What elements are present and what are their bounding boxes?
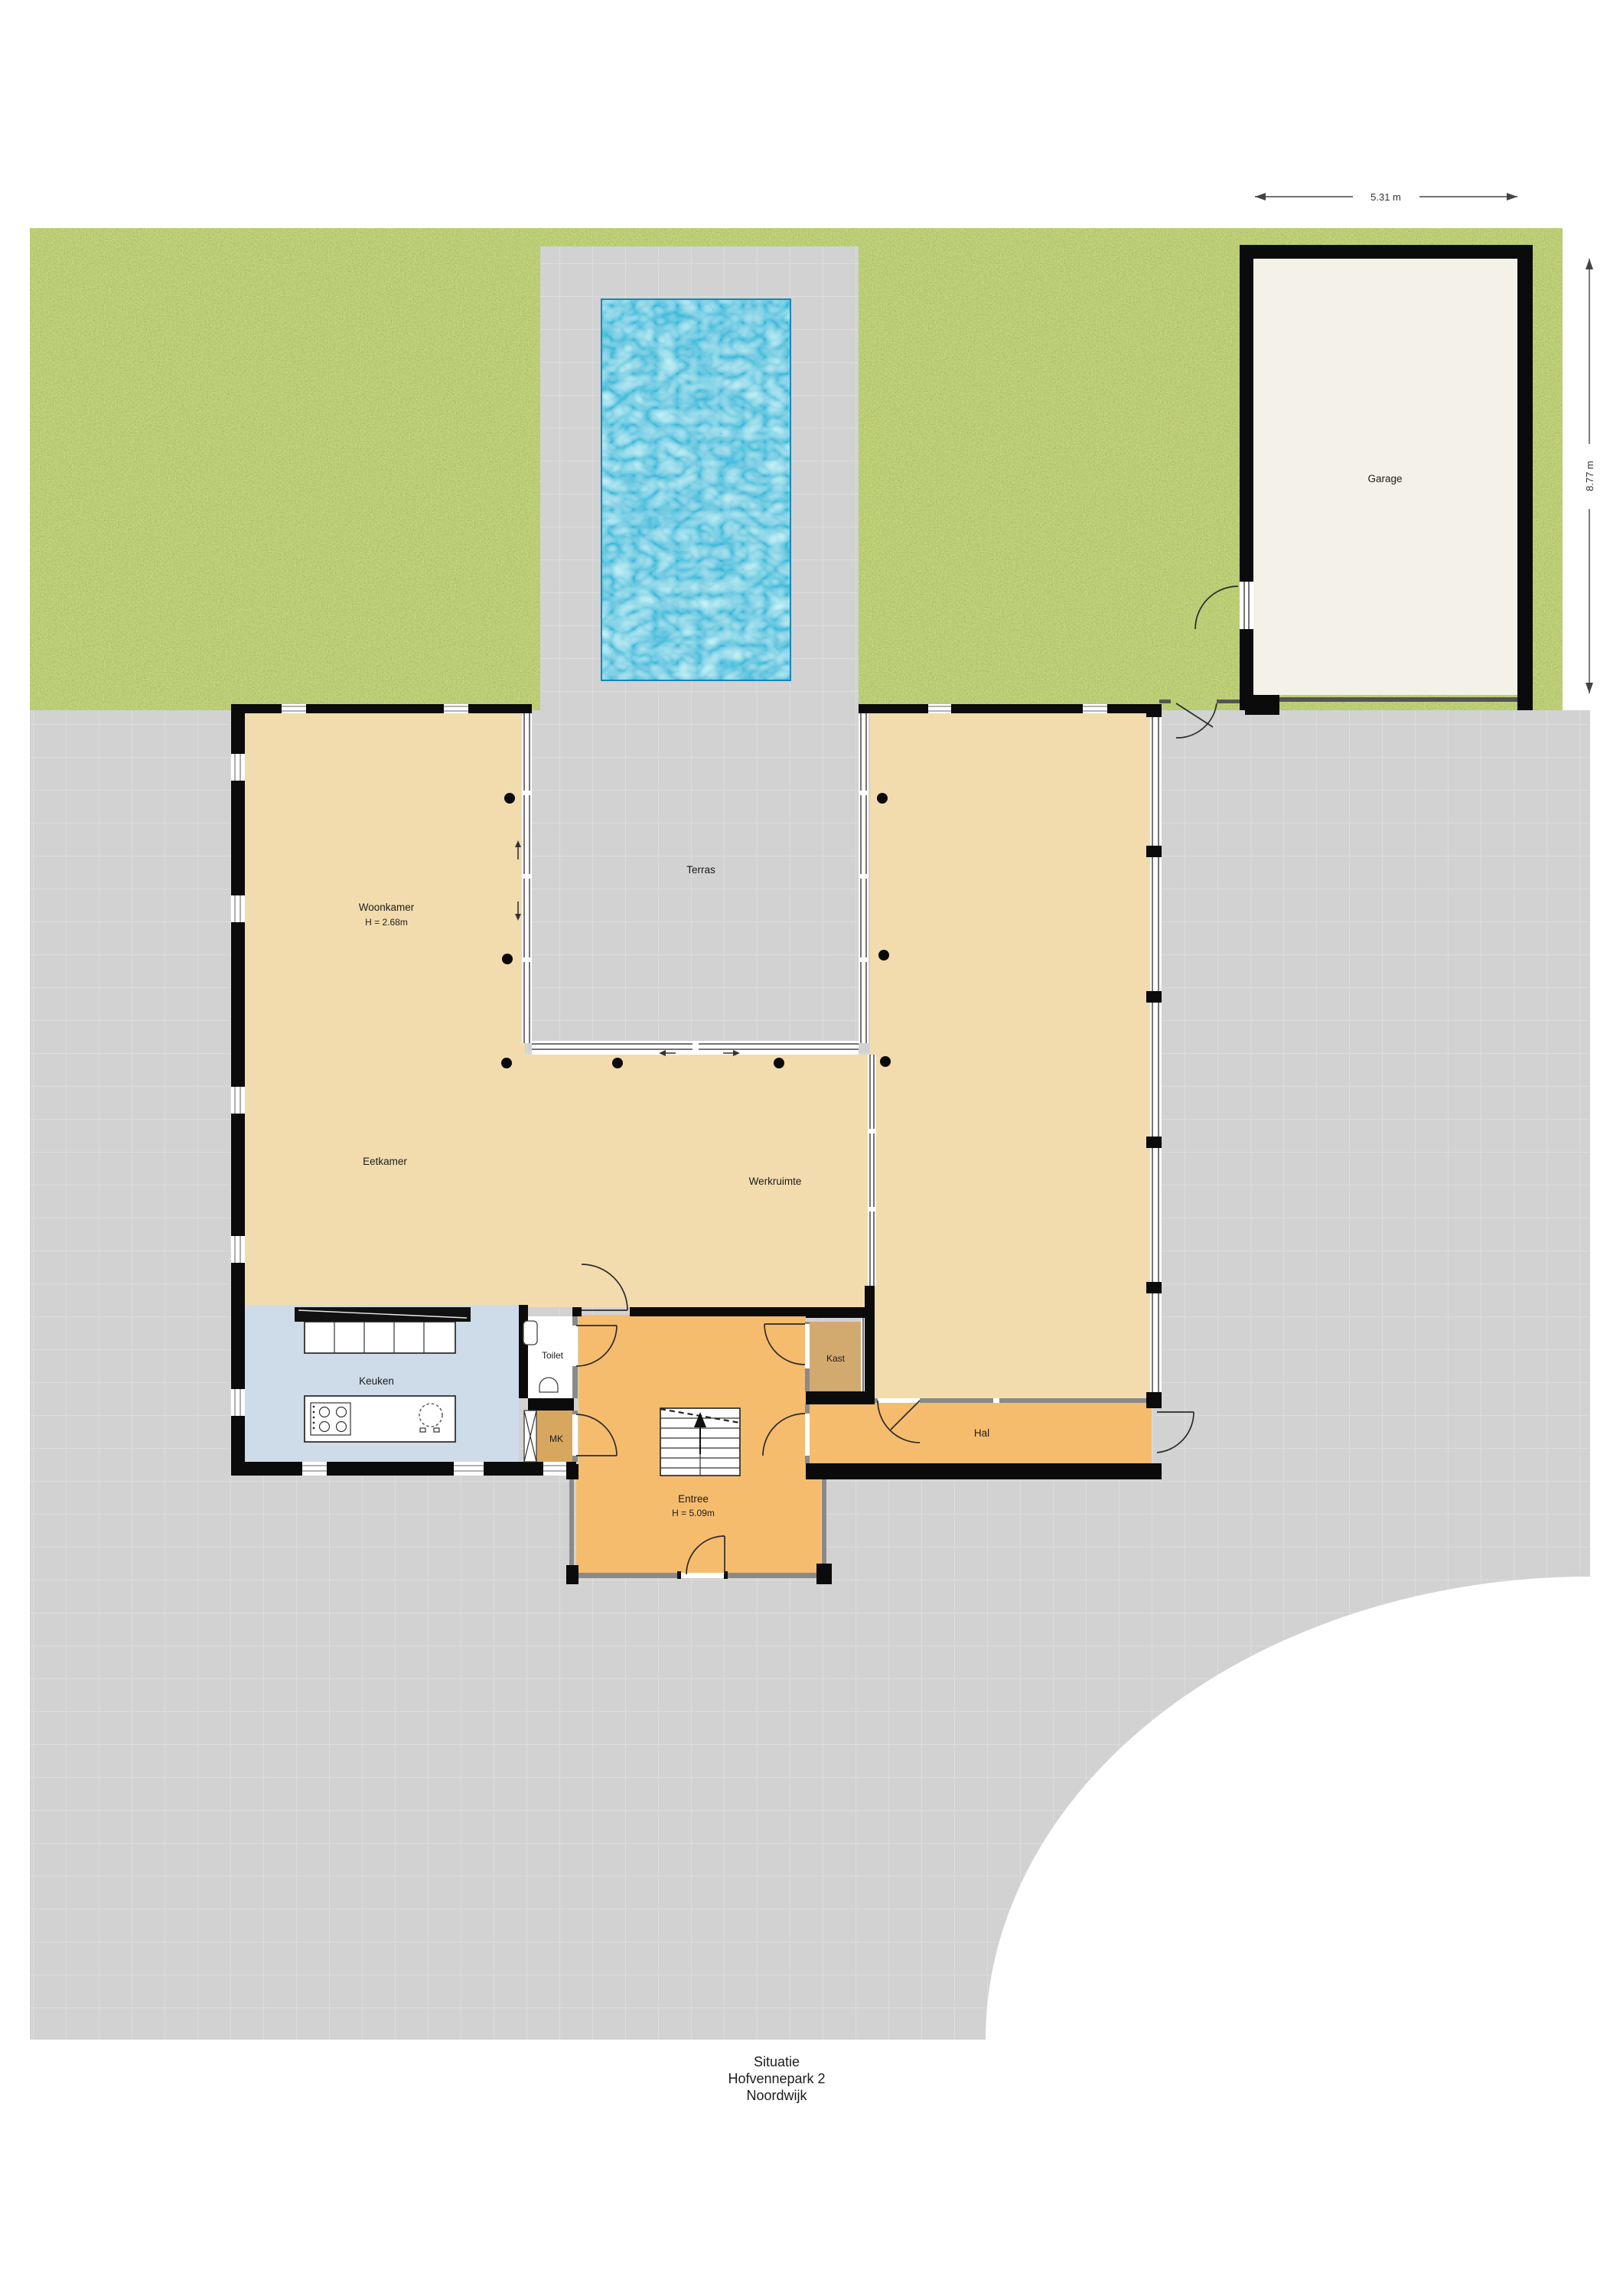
hal-label: Hal [974,1427,989,1439]
woonkamer-label: Woonkamer [359,902,415,913]
woonkamer-height-label: H = 2.68m [365,917,408,928]
wall-toilet-west [519,1305,528,1398]
wall-north-east [859,704,1162,713]
garage-label: Garage [1367,473,1402,484]
garage: Garage [1195,245,1533,715]
garage-wall-east [1517,259,1533,710]
werkruimte-label: Werkruimte [749,1176,802,1187]
window-north-2 [444,704,468,713]
garage-wall-west-lower [1240,629,1253,695]
staircase [660,1408,740,1476]
wall-kast-north [806,1307,865,1318]
wall-toilet-mk [528,1398,574,1411]
wall-entree-north [630,1307,806,1316]
garage-width-label: 5.31 m [1370,191,1401,203]
garage-side-door-gap [1240,582,1253,629]
window-west-5 [231,1389,245,1416]
garage-depth-label: 8.77 m [1584,461,1595,491]
title-block: Situatie Hofvennepark 2 Noordwijk [728,2054,825,2103]
kitchen-cabinets [305,1322,455,1353]
dimension-garage-depth: 8.77 m [1584,259,1595,693]
window-north-3 [928,704,951,713]
eetkamer-label: Eetkamer [363,1156,407,1167]
wall-kast-south [806,1391,865,1404]
floor-werkruimte [525,1055,870,1307]
dimension-garage-width: 5.31 m [1255,191,1517,203]
mk-label: MK [549,1433,563,1444]
terras-label: Terras [686,864,715,876]
window-south-2 [454,1462,484,1476]
toilet-sink [523,1321,537,1345]
window-south-1 [302,1462,327,1476]
window-west-3 [231,1087,245,1114]
garage-wall-south-pier [1245,704,1279,715]
wall-south-hal [806,1463,1162,1479]
wall-north-west [231,704,532,713]
entree-height-label: H = 5.09m [672,1508,715,1518]
garage-wall-west-upper [1240,259,1253,582]
window-north-1 [282,704,306,713]
garage-door-line [1279,697,1517,702]
title-line-1: Situatie [754,2054,800,2069]
toilet-label: Toilet [542,1350,564,1361]
floor-woonkamer-eetkamer [245,713,525,1305]
floor-entree-lower [576,1476,821,1575]
toilet-bowl [539,1378,558,1392]
wall-south-main [231,1462,576,1476]
entree-label: Entree [678,1493,709,1505]
keuken-label: Keuken [359,1375,394,1387]
window-west-4 [231,1236,245,1263]
wall-kast-east [865,1286,875,1404]
title-line-3: Noordwijk [746,2088,807,2103]
mk-hatch [524,1411,536,1462]
swimming-pool [601,299,790,680]
window-south-3 [543,1462,566,1476]
window-west-1 [231,754,245,781]
floor-east-wing [870,713,1152,1398]
title-line-2: Hofvennepark 2 [728,2071,825,2086]
situation-plan-page: Garage [0,0,1623,2296]
floor-terras [532,710,859,1043]
floor-plan-canvas: Garage [0,0,1623,2296]
window-north-4 [1083,704,1107,713]
kast-label: Kast [826,1353,846,1364]
window-west-2 [231,895,245,922]
garage-wall-north [1240,245,1533,259]
